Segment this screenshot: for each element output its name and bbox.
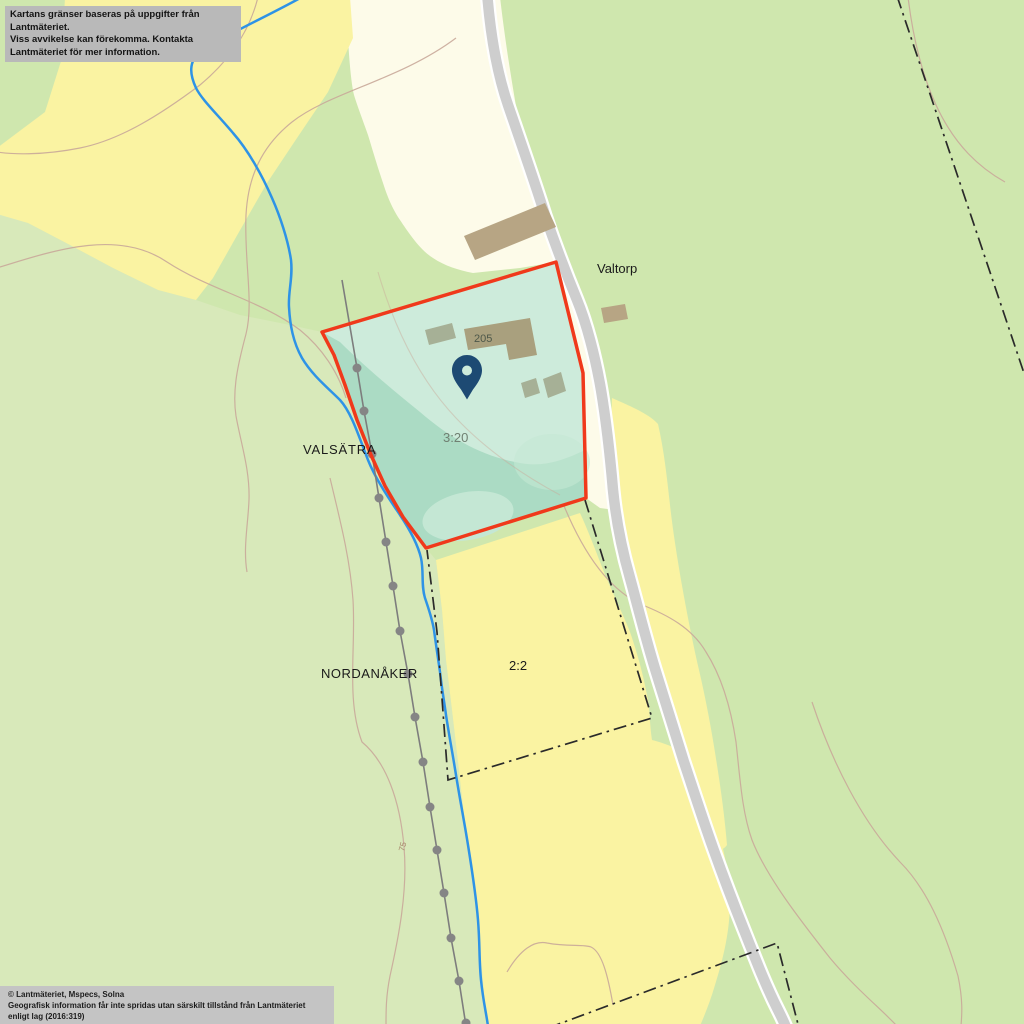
label-valsatra: VALSÄTRA: [303, 442, 376, 457]
map-viewport[interactable]: 205 Valtorp VALSÄTRA NORDANÅKER 3:20 2:2…: [0, 0, 1024, 1024]
map-canvas[interactable]: 205 Valtorp VALSÄTRA NORDANÅKER 3:20 2:2…: [0, 0, 1024, 1024]
label-parcel-3-20: 3:20: [443, 430, 468, 445]
parcel-light-patch-east: [514, 434, 590, 490]
copyright-notice: © Lantmäteriet, Mspecs, Solna Geografisk…: [0, 986, 334, 1024]
copyright-line-2: Geografisk information får inte spridas …: [8, 1001, 326, 1023]
label-parcel-2-2: 2:2: [509, 658, 527, 673]
label-building-205: 205: [474, 333, 492, 345]
disclaimer-line-1: Kartans gränser baseras på uppgifter frå…: [10, 9, 236, 34]
label-valtorp: Valtorp: [597, 261, 637, 276]
disclaimer-line-2: Viss avvikelse kan förekomma. Kontakta L…: [10, 34, 236, 59]
label-nordanaker: NORDANÅKER: [321, 666, 418, 681]
disclaimer-notice: Kartans gränser baseras på uppgifter frå…: [5, 6, 241, 62]
copyright-line-1: © Lantmäteriet, Mspecs, Solna: [8, 990, 326, 1001]
